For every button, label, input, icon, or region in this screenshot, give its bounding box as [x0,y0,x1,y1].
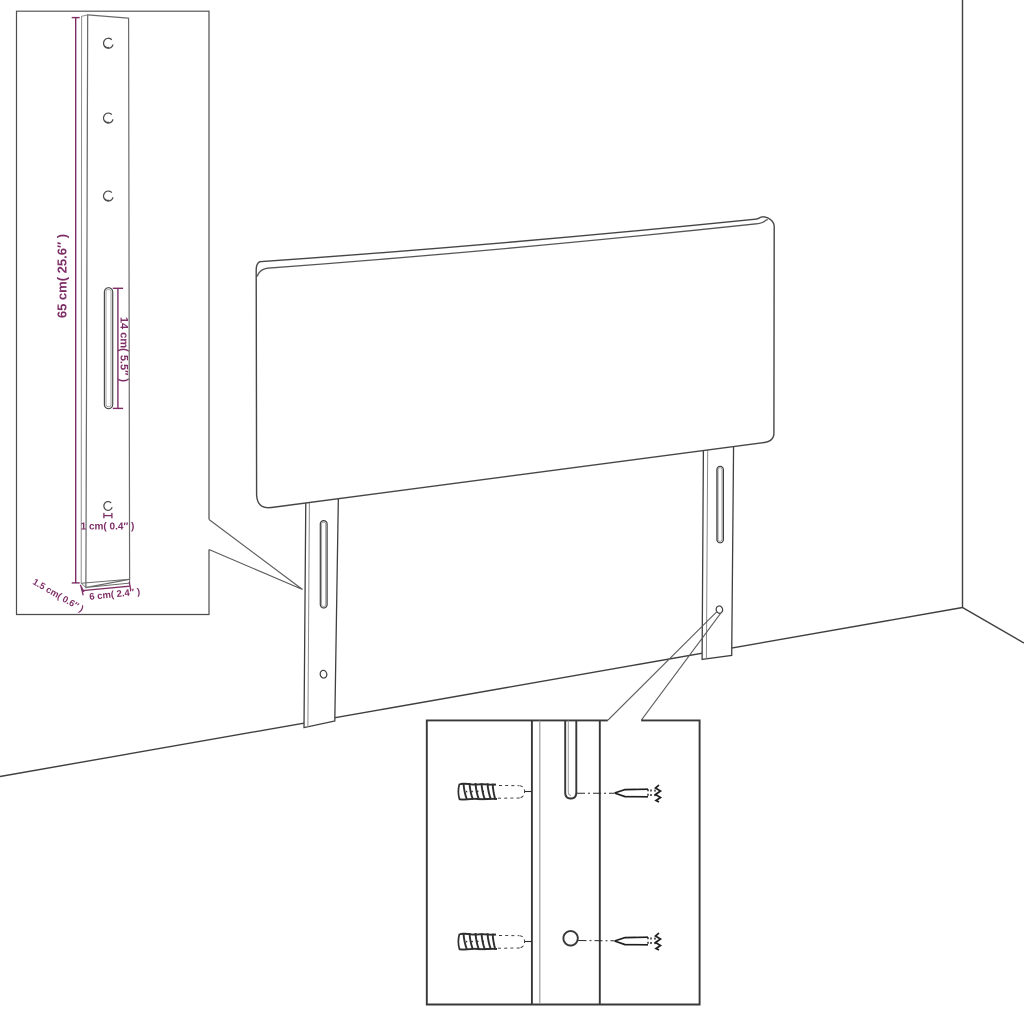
svg-text:1 cm( 0.4″ ): 1 cm( 0.4″ ) [81,522,135,533]
svg-text:14 cm( 5.5″ ): 14 cm( 5.5″ ) [118,317,130,383]
svg-text:65 cm( 25.6″ ): 65 cm( 25.6″ ) [55,234,70,318]
